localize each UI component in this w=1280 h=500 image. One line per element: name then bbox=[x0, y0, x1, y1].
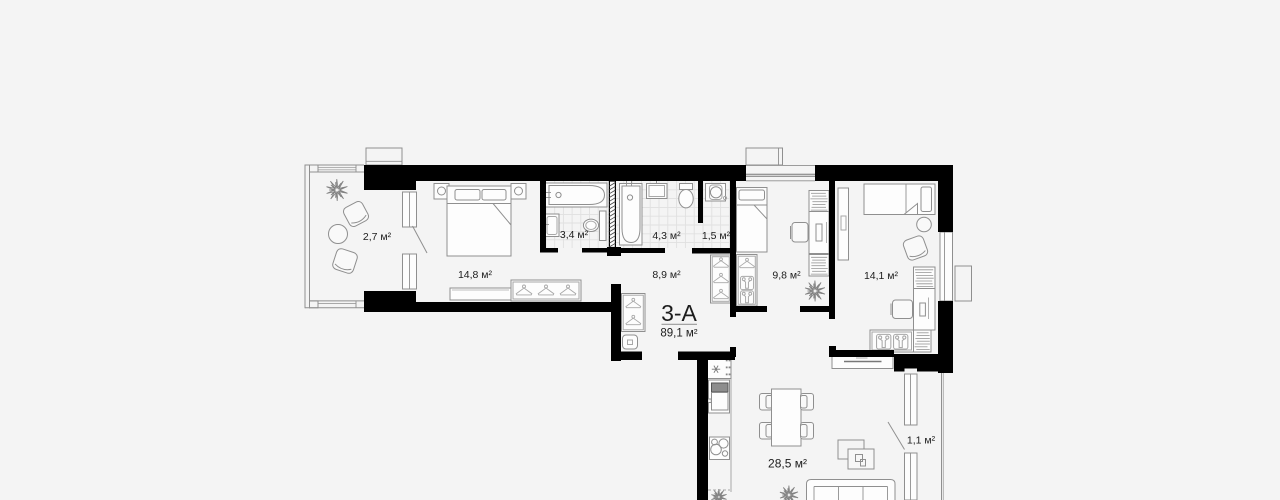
svg-text:9,8 м²: 9,8 м² bbox=[772, 270, 801, 282]
svg-text:14,1 м²: 14,1 м² bbox=[864, 270, 899, 282]
svg-text:1,1 м²: 1,1 м² bbox=[907, 435, 936, 447]
svg-text:3-А: 3-А bbox=[661, 300, 697, 326]
svg-text:1,5 м²: 1,5 м² bbox=[702, 230, 731, 242]
svg-text:28,5 м²: 28,5 м² bbox=[768, 457, 807, 471]
svg-text:89,1 м²: 89,1 м² bbox=[660, 328, 697, 340]
svg-text:4,3 м²: 4,3 м² bbox=[652, 230, 681, 242]
svg-text:14,8 м²: 14,8 м² bbox=[458, 269, 493, 281]
svg-text:2,7 м²: 2,7 м² bbox=[363, 231, 392, 243]
svg-text:8,9 м²: 8,9 м² bbox=[652, 269, 681, 281]
svg-text:3,4 м²: 3,4 м² bbox=[560, 229, 589, 241]
